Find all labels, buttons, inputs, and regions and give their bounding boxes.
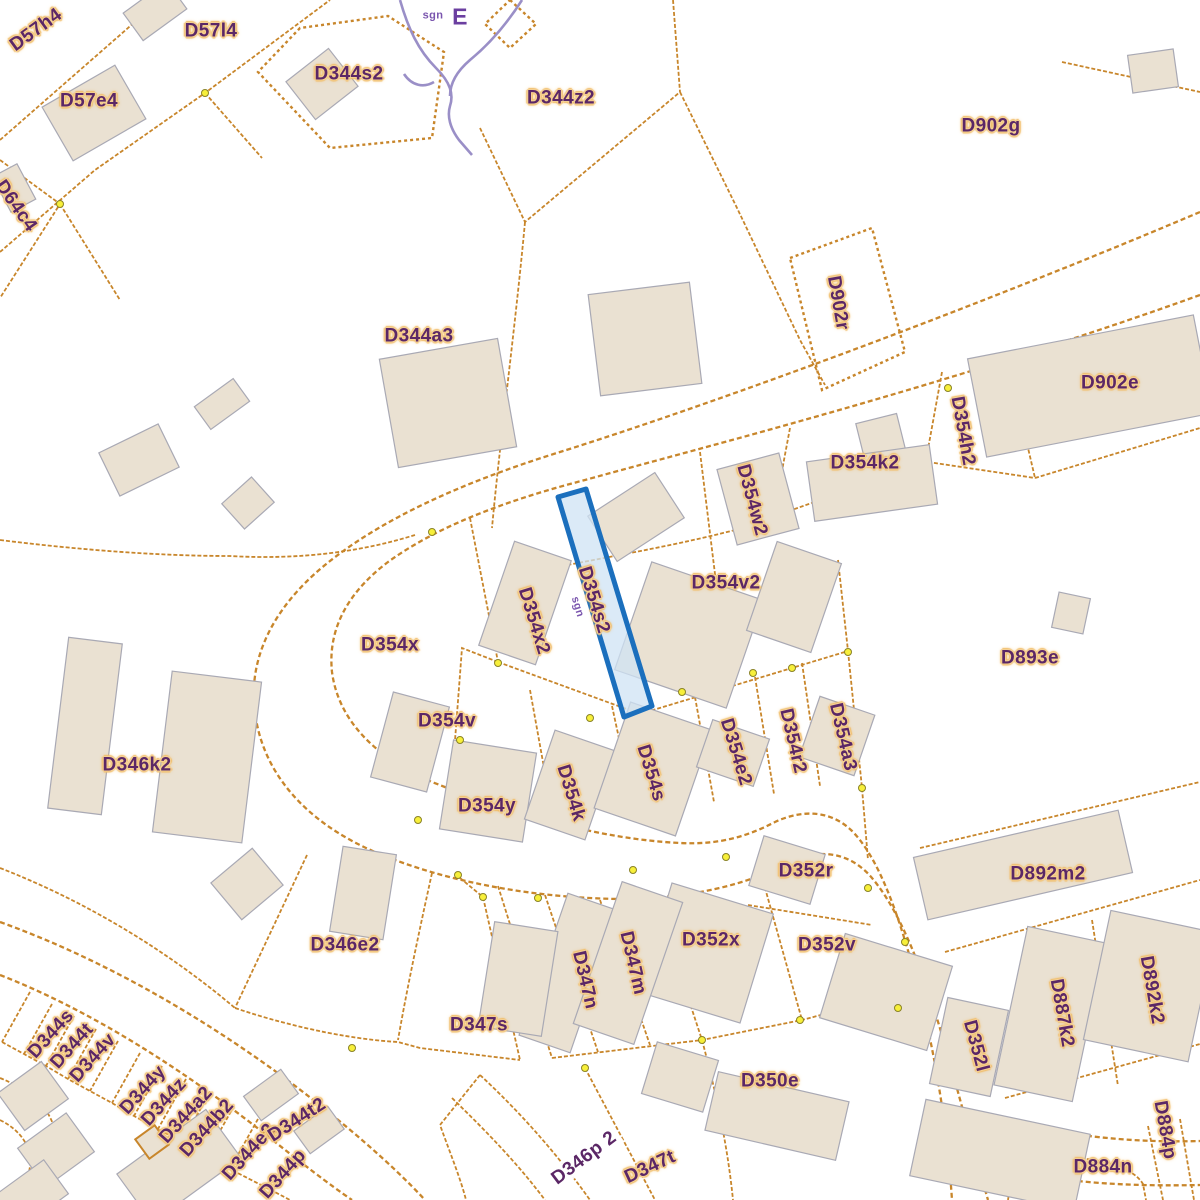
parcel-label-D344s2: D344s2 xyxy=(315,65,384,84)
parcel-label-D354v2: D354v2 xyxy=(692,574,761,593)
parcel-label-D57l4: D57l4 xyxy=(185,22,238,41)
parcel-label-D892m2: D892m2 xyxy=(1010,865,1085,884)
parcel-label-D354y: D354y xyxy=(458,797,516,816)
map-annotation: E xyxy=(452,6,468,29)
parcel-label-D354v: D354v xyxy=(418,712,476,731)
parcel-label-D347s: D347s xyxy=(450,1016,508,1035)
parcel-label-D346e2: D346e2 xyxy=(311,936,380,955)
parcel-label-D354k2: D354k2 xyxy=(831,454,900,473)
parcel-label-D57e4: D57e4 xyxy=(60,92,118,111)
parcel-label-D346k2: D346k2 xyxy=(103,756,172,775)
parcel-label-D902e: D902e xyxy=(1081,374,1139,393)
stippled-parcel-outlines xyxy=(258,0,905,390)
parcel-label-D893e: D893e xyxy=(1001,649,1059,668)
map-annotation: sgn xyxy=(423,11,444,22)
parcel-label-D344a3: D344a3 xyxy=(385,327,454,346)
parcel-label-D344z2: D344z2 xyxy=(527,89,595,108)
parcel-label-D902g: D902g xyxy=(961,117,1020,136)
parcel-label-D350e: D350e xyxy=(741,1072,799,1091)
parcel-label-D884n: D884n xyxy=(1073,1158,1132,1177)
parcel-label-D352r: D352r xyxy=(779,862,834,881)
map-canvas[interactable]: D57h4D57l4D344s2D344z2D902gD57e4D64c4Esg… xyxy=(0,0,1200,1200)
parcel-label-D354x: D354x xyxy=(361,636,419,655)
parcel-label-D352v: D352v xyxy=(798,936,856,955)
parcel-label-D352x: D352x xyxy=(682,931,740,950)
